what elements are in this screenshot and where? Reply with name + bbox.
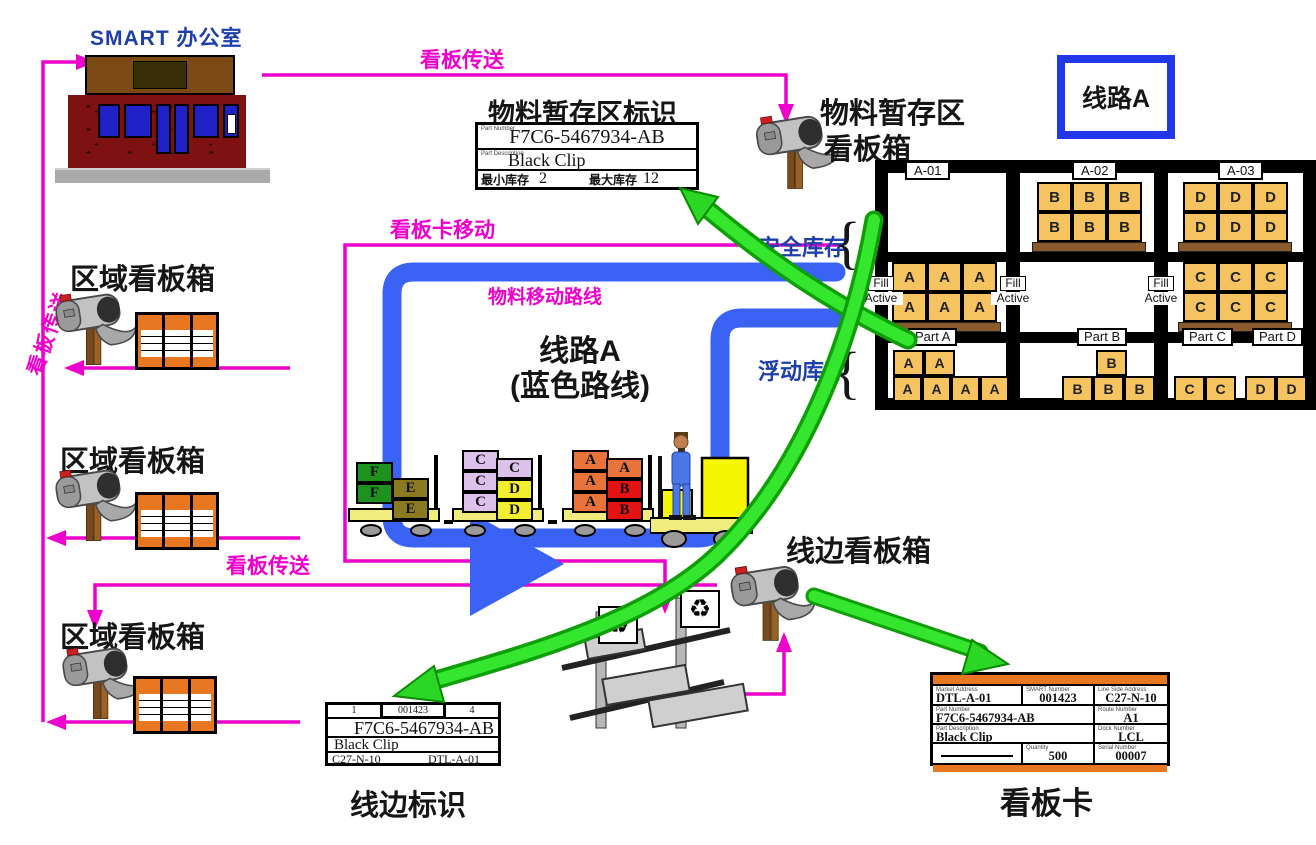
crate: C <box>1253 292 1288 322</box>
cart2-left-stack: CCC <box>462 450 499 513</box>
crate: C <box>1218 262 1253 292</box>
cart-box: F <box>356 483 393 504</box>
cart-wheel <box>574 524 596 537</box>
kanban-card-row1: Market Address DTL-A-01 SMART Number 001… <box>933 686 1167 706</box>
part-label-a: Part A <box>908 328 957 346</box>
green-arrow-to-kanban-card-outline <box>814 596 980 652</box>
bay3-upper-crates: DDDDDD <box>1183 182 1288 242</box>
tractor-load-box <box>702 458 748 520</box>
lineside-address-left: C27-N-10 <box>332 753 381 765</box>
lineside-address-row: C27-N-10 DTL-A-01 <box>328 753 498 765</box>
cart3-left-stack: AAA <box>572 450 609 513</box>
line-side-address-cell: Line Side Address C27-N-10 <box>1095 686 1167 704</box>
kanban-card-row4: Quantity 500 Serial Number 00007 <box>933 744 1167 763</box>
part-number-value: F7C6-5467934-AB <box>933 712 1093 725</box>
lineside-cell-left: 1 <box>328 705 382 717</box>
person-torso <box>672 452 690 486</box>
flow-rack-rail <box>570 682 724 718</box>
office-window <box>98 104 120 138</box>
part-label-d: Part D <box>1252 328 1303 346</box>
line-a-caption-line1: 线路A <box>470 334 690 369</box>
recycle-icon: ♻ <box>689 594 711 624</box>
pallet <box>1178 242 1292 252</box>
bay2-floor-bottom-crates: BBB <box>1062 376 1155 402</box>
cart-box: D <box>496 479 533 500</box>
cart-pole <box>434 455 438 510</box>
max-stock-label: 最大库存 <box>589 171 637 188</box>
crate: C <box>1183 262 1218 292</box>
cart-wheel <box>464 524 486 537</box>
office-sign <box>133 61 187 89</box>
lineside-mailbox-icon <box>722 558 820 646</box>
cart-pole <box>538 455 542 510</box>
line-side-address-value: C27-N-10 <box>1095 692 1167 705</box>
tow-tractor <box>650 432 760 550</box>
lineside-card-top-row: 1 001423 4 <box>328 705 498 719</box>
crate: D <box>1183 212 1218 242</box>
cart-box: E <box>392 499 429 520</box>
person-shoe <box>669 515 682 520</box>
crate: A <box>951 376 980 402</box>
cart-box: B <box>606 479 643 500</box>
fill-active-tag: Fill Active <box>1139 276 1183 305</box>
market-address-value: DTL-A-01 <box>933 692 1021 705</box>
part-desc-cell: Part Description Black Clip <box>933 725 1095 742</box>
min-stock-value: 2 <box>539 170 547 188</box>
crate: A <box>980 376 1009 402</box>
crate: D <box>1218 182 1253 212</box>
person-head <box>674 435 688 449</box>
staging-card-part-number-row: Part Number F7C6-5467934-AB <box>478 125 696 150</box>
office-door <box>156 104 171 154</box>
fill-tag-line1: Fill <box>868 276 893 291</box>
to-lineside-box-line <box>728 650 784 694</box>
office-window <box>124 104 152 138</box>
cart-box: E <box>392 478 429 499</box>
cart-box: A <box>572 492 609 513</box>
cart-hitch <box>548 520 557 524</box>
crate: C <box>1218 292 1253 322</box>
green-arrowhead-staging <box>680 188 718 224</box>
crate: A <box>924 350 955 376</box>
shelf-label-a01: A-01 <box>905 161 950 180</box>
bay2-upper-crates: BBBBBB <box>1037 182 1142 242</box>
smart-number-value: 001423 <box>1023 692 1093 705</box>
kanban-card-move-label: 看板卡移动 <box>390 214 495 244</box>
mini-card-divider <box>190 495 193 547</box>
kanban-card-row3: Part Description Black Clip Dock Number … <box>933 725 1167 744</box>
lineside-cell-mid: 001423 <box>382 705 444 717</box>
serial-number-value: 00007 <box>1095 750 1167 763</box>
fill-tag-line1: Fill <box>1148 276 1173 291</box>
fill-active-tag: Fill Active <box>991 276 1035 305</box>
route-number-cell: Route Number A1 <box>1095 706 1167 723</box>
part-label-c: Part C <box>1182 328 1233 346</box>
mini-kanban-card-3 <box>133 676 217 734</box>
part-desc-value: Black Clip <box>933 731 1093 744</box>
flow-rack-rail <box>562 630 730 668</box>
fill-tag-line2: Active <box>859 292 903 305</box>
crate: B <box>1107 182 1142 212</box>
person-leg <box>683 484 690 516</box>
mini-card-divider <box>162 315 165 367</box>
crate: A <box>927 262 962 292</box>
staging-area-card: Part Number F7C6-5467934-AB Part Descrip… <box>475 122 699 190</box>
smart-number-cell: SMART Number 001423 <box>1023 686 1095 704</box>
recycle-icon: ♻ <box>607 610 629 640</box>
crate: B <box>1093 376 1124 402</box>
mini-card-divider <box>162 495 165 547</box>
cart-box: B <box>606 500 643 521</box>
bay3-floor-bottom-crates: CCDD <box>1174 376 1307 402</box>
crate: B <box>1037 182 1072 212</box>
mini-card-rows <box>141 510 213 537</box>
kanban-transfer-mid-label: 看板传送 <box>226 550 310 580</box>
cart-wheel <box>624 524 646 537</box>
lineside-box-title: 线边看板箱 <box>786 528 931 570</box>
crate: C <box>1174 376 1205 402</box>
crate: A <box>893 376 922 402</box>
kanban-card-title: 看板卡 <box>1000 778 1093 823</box>
kanban-card-footer-bar <box>933 763 1167 772</box>
rack-post <box>1303 160 1316 408</box>
part-description-label: Part Description <box>481 151 524 157</box>
mini-card-rows <box>139 694 211 721</box>
crate: D <box>1245 376 1276 402</box>
safety-stock-brace: { <box>833 216 861 270</box>
route-number-value: A1 <box>1095 712 1167 725</box>
cart-box: C <box>496 458 533 479</box>
region-mailbox-icon-2 <box>48 462 140 546</box>
bay3-middle-crates: CCCCCC <box>1183 262 1288 322</box>
lineside-label-card: 1 001423 4 F7C6-5467934-AB Black Clip C2… <box>325 702 501 766</box>
lineside-part-desc: Black Clip <box>328 738 498 753</box>
tractor-wheel <box>714 531 738 547</box>
person-shoe <box>683 515 696 520</box>
staging-card-stock-row: 最小库存 2 最大库存 12 <box>478 171 696 187</box>
dock-number-value: LCL <box>1095 731 1167 744</box>
rack-shelf-bar <box>1168 252 1303 262</box>
bay1-floor-top-crates: AA <box>893 350 955 376</box>
rack-shelf-bar <box>1020 252 1154 262</box>
green-arrowhead-kanban-card <box>962 640 1008 674</box>
tractor-wheel <box>662 531 686 547</box>
bay1-floor-bottom-crates: AAAA <box>893 376 1009 402</box>
crate: C <box>1253 262 1288 292</box>
dock-number-cell: Dock Number LCL <box>1095 725 1167 742</box>
shelf-label-a03: A-03 <box>1218 161 1263 180</box>
material-route-label: 物料移动路线 <box>488 282 602 309</box>
person-leg <box>673 484 680 516</box>
route-a-box-label: 线路A <box>1082 79 1150 115</box>
crate: B <box>1062 376 1093 402</box>
crate: A <box>927 292 962 322</box>
crate: B <box>1072 212 1107 242</box>
kanban-card-row2: Part Number F7C6-5467934-AB Route Number… <box>933 706 1167 725</box>
kanban-transfer-top-label: 看板传送 <box>420 44 504 74</box>
staging-card-part-desc-row: Part Description Black Clip <box>478 150 696 171</box>
bay2-floor-top-crates: B <box>1096 350 1127 376</box>
crate: C <box>1205 376 1236 402</box>
cart-wheel <box>410 524 432 537</box>
line-a-caption: 线路A (蓝色路线) <box>470 334 690 404</box>
green-arrowhead-lineside <box>394 666 444 702</box>
cart-box: C <box>462 450 499 471</box>
crate: D <box>1183 182 1218 212</box>
mini-card-rows <box>141 330 213 357</box>
mini-kanban-card-2 <box>135 492 219 550</box>
cart-wheel <box>360 524 382 537</box>
cart-box: C <box>462 492 499 513</box>
crate: A <box>922 376 951 402</box>
part-number-cell: Part Number F7C6-5467934-AB <box>933 706 1095 723</box>
arrowhead-flowrack <box>657 594 673 614</box>
green-arrow-to-kanban-card <box>814 596 980 652</box>
recycle-bin: ♻ <box>680 590 720 628</box>
quantity-value: 500 <box>1023 750 1093 763</box>
serial-number-cell: Serial Number 00007 <box>1095 744 1167 763</box>
crate: C <box>1183 292 1218 322</box>
pallet <box>1032 242 1146 252</box>
office-door <box>174 104 189 154</box>
crate: A <box>893 350 924 376</box>
lineside-address-right: DTL-A-01 <box>428 753 480 765</box>
mini-card-divider <box>160 679 163 731</box>
lineside-card-title: 线边标识 <box>350 782 466 824</box>
office-window <box>193 104 219 138</box>
shelf-label-a02: A-02 <box>1072 161 1117 180</box>
crate: D <box>1276 376 1307 402</box>
crate: D <box>1253 182 1288 212</box>
mini-card-divider <box>190 315 193 367</box>
recycle-bin: ♻ <box>598 606 638 644</box>
crate: D <box>1253 212 1288 242</box>
flow-rack-tote <box>648 684 747 727</box>
mini-card-divider <box>188 679 191 731</box>
empty-cell <box>933 744 1023 763</box>
cart-wheel <box>514 524 536 537</box>
fill-tag-line2: Active <box>991 292 1035 305</box>
office-title: SMART 办公室 <box>90 22 243 52</box>
rack-shelf-bar <box>888 252 1006 262</box>
bay1-middle-crates: AAAAAA <box>892 262 997 322</box>
cart-box: C <box>462 471 499 492</box>
crate: B <box>1107 212 1142 242</box>
cart-box: D <box>496 500 533 521</box>
max-stock-value: 12 <box>643 170 659 188</box>
lineside-part-number: F7C6-5467934-AB <box>328 719 498 738</box>
crate: B <box>1037 212 1072 242</box>
cart-box: A <box>606 458 643 479</box>
floating-stock-brace: { <box>833 346 861 400</box>
empty-cell-line <box>941 755 1013 757</box>
fill-active-tag: Fill Active <box>859 276 903 305</box>
cart-box: F <box>356 462 393 483</box>
part-label-b: Part B <box>1077 328 1127 346</box>
part-number-label: Part Number <box>481 126 515 132</box>
cart-box: A <box>572 450 609 471</box>
fill-tag-line1: Fill <box>1000 276 1025 291</box>
cart1-right-stack: EE <box>392 478 429 520</box>
kanban-flow-diagram: SMART 办公室 看板传送 看板传送 看板传送 看板卡移动 物料移动路线 物料… <box>0 0 1316 845</box>
crate: B <box>1072 182 1107 212</box>
route-a-box: 线路A <box>1057 55 1175 139</box>
cart1-left-stack: FF <box>356 462 393 504</box>
kanban-card-header-bar <box>933 675 1167 686</box>
market-address-cell: Market Address DTL-A-01 <box>933 686 1023 704</box>
min-stock-label: 最小库存 <box>481 171 529 188</box>
office-sidewalk <box>55 168 270 183</box>
crate: D <box>1218 212 1253 242</box>
mini-kanban-card-1 <box>135 312 219 370</box>
crate: B <box>1096 350 1127 376</box>
fill-tag-line2: Active <box>1139 292 1183 305</box>
office-white-door <box>227 114 236 134</box>
cart-box: A <box>572 471 609 492</box>
quantity-cell: Quantity 500 <box>1023 744 1095 763</box>
flow-rack-tote <box>602 665 689 705</box>
kanban-card: Market Address DTL-A-01 SMART Number 001… <box>930 672 1170 766</box>
line-a-caption-line2: (蓝色路线) <box>470 369 690 404</box>
crate: B <box>1124 376 1155 402</box>
tractor-platform <box>650 518 752 533</box>
region-mailbox-icon-1 <box>48 286 140 370</box>
lineside-cell-right: 4 <box>444 705 498 717</box>
